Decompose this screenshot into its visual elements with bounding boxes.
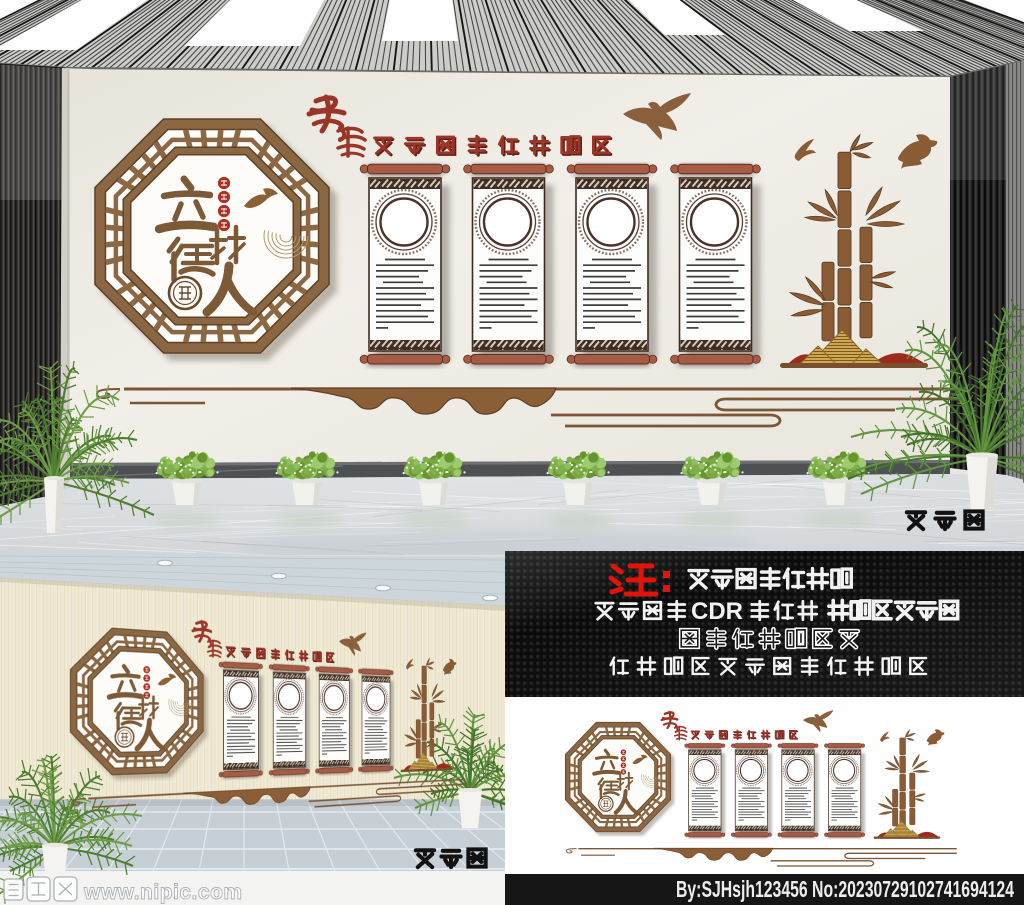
svg-text:www.nipic.com: www.nipic.com: [83, 881, 243, 904]
svg-text:By:SJHsjh123456 No:20230729102: By:SJHsjh123456 No:20230729102741694124: [676, 876, 1014, 902]
svg-text:CDR: CDR: [691, 598, 743, 625]
